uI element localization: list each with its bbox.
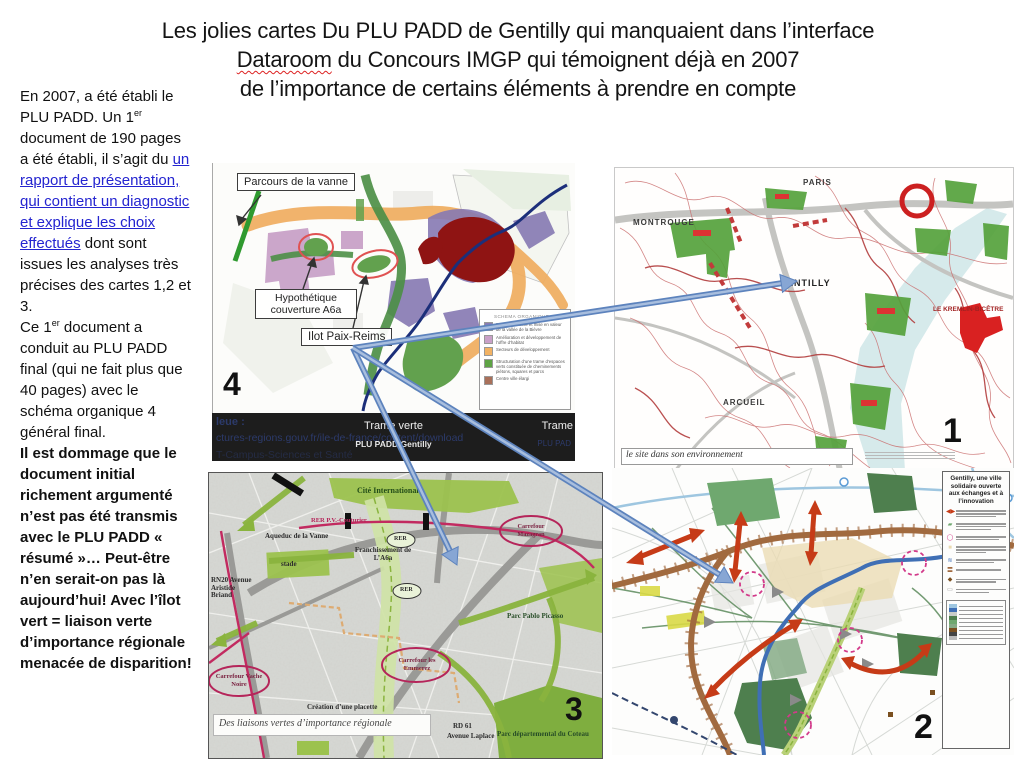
map1-site-environnement: PARIS MONTROUGE GENTILLY ARCUEIL LE KREM… <box>614 167 1014 472</box>
legend-item: 〓 <box>946 568 1006 574</box>
label-couverture-a6a: Hypothétique couverture A6a <box>255 289 357 319</box>
label-parcours-vanne: Parcours de la vanne <box>237 173 355 191</box>
page-title: Les jolies cartes Du PLU PADD de Gentill… <box>118 16 918 103</box>
banner-center-sub: PLU PADD Gentilly <box>212 439 575 449</box>
mauve-swatch <box>484 335 493 344</box>
label-stade: stade <box>281 561 297 569</box>
banner-right-sub: PLU PAD <box>537 439 571 448</box>
banner-right-title: Trame <box>542 420 573 432</box>
banner-left-url2: T-Campus-Sciences et Santé <box>216 449 353 461</box>
map2-number: 2 <box>914 708 933 747</box>
legend-item: Structuration d’une trame d’espaces vert… <box>484 359 567 374</box>
label-cite-internationale: Cité Internationale <box>357 487 422 495</box>
legend-item: ◆ <box>946 577 1006 584</box>
legend-item: ◯ <box>946 535 1006 542</box>
label-carrefour-mazagran: Carrefour Mazagran <box>507 523 555 538</box>
legend-item: ▭ <box>946 587 1006 594</box>
purple-swatch <box>484 322 493 331</box>
label-rer-pv: RER P.V.-Couturier <box>311 517 367 525</box>
map2-legend: Gentilly, une ville solidaire ouverte au… <box>942 471 1010 749</box>
label-parc-picasso: Parc Pablo Picasso <box>507 613 563 621</box>
legend-line <box>959 630 1003 631</box>
label-rer-1: RER <box>394 536 407 544</box>
note-icon: ▭ <box>946 587 954 593</box>
legend-line <box>959 638 1003 639</box>
label-carrefour-vache-noire: Carrefour Vache Noire <box>215 673 263 688</box>
label-kremlin-bicetre: LE KREMLIN-BICÊTRE <box>933 306 1003 313</box>
legend-item: ≋ <box>946 558 1006 565</box>
label-rer-2: RER <box>400 587 413 595</box>
legend-item: Secteurs de développement <box>484 347 567 356</box>
map2-legend-title: Gentilly, une ville solidaire ouverte au… <box>946 475 1006 505</box>
label-franchissement: Franchissement de L’A6a <box>347 547 419 562</box>
legend-line <box>959 622 1003 623</box>
legend-item: Centre ville élargi <box>484 376 567 385</box>
legend-line <box>959 606 1003 607</box>
bar-icon: 〓 <box>946 568 954 574</box>
green-swatch <box>484 359 493 368</box>
sidebar-paragraph-1: En 2007, a été établi le PLU PADD. Un 1e… <box>20 86 192 317</box>
title-dataroom: Dataroom <box>237 47 332 72</box>
legend-line <box>959 634 1003 635</box>
sidebar-commentary: En 2007, a été établi le PLU PADD. Un 1e… <box>20 86 192 674</box>
label-gentilly: GENTILLY <box>779 278 831 288</box>
label-montrouge: MONTROUGE <box>633 218 695 227</box>
sidebar-paragraph-2: Ce 1er document a conduit au PLU PADD fi… <box>20 317 192 443</box>
brown-swatch <box>484 376 493 385</box>
circle-icon: ◯ <box>946 535 954 541</box>
legend-line <box>959 614 1003 615</box>
map1-caption: le site dans son environnement <box>621 448 853 465</box>
label-placette: Création d’une placette <box>307 704 377 712</box>
orange-swatch <box>484 347 493 356</box>
map3-caption: Des liaisons vertes d’importance régiona… <box>213 714 431 736</box>
map2-sublegend <box>946 600 1006 644</box>
legend-item: Amélioration et développement de l’offre… <box>484 335 567 345</box>
map1-number: 1 <box>943 412 962 451</box>
label-rn20: RN20 Avenue Aristide Briand <box>211 577 253 600</box>
green-leaf-icon: ▰ <box>946 522 954 528</box>
red-arrow-icon: ◀▶ <box>946 509 954 515</box>
map4-schema-organique: Parcours de la vanne Hypothétique couver… <box>212 163 575 413</box>
legend-item: ▰ <box>946 522 1006 532</box>
label-carrefour-emmerez: Carrefour les Emmerez <box>391 657 443 672</box>
map1-credits <box>865 450 955 461</box>
title-line2: Dataroom du Concours IMGP qui témoignent… <box>118 45 918 74</box>
label-paris: PARIS <box>803 178 832 187</box>
video-caption-banner: leue : ctures-regions.gouv.fr/ile-de-fra… <box>212 413 575 461</box>
sidebar-paragraph-3: Il est dommage que le document initial r… <box>20 443 192 674</box>
monument-icon: ◆ <box>946 577 954 583</box>
map4-legend-title: SCHEMA ORGANIQUE <box>494 314 567 319</box>
label-aqueduc: Aqueduc de la Vanne <box>265 533 328 541</box>
map4-legend: SCHEMA ORGANIQUE Reconnaissance et mise … <box>479 309 571 410</box>
legend-item: Reconnaissance et mise en valeur de la v… <box>484 322 567 332</box>
map3-number: 3 <box>565 691 583 728</box>
legend-line <box>959 618 1003 619</box>
label-arcueil: ARCUEIL <box>723 398 766 407</box>
legend-line <box>959 626 1003 627</box>
map3-liaisons-vertes: Cité Internationale RER P.V.-Couturier A… <box>208 472 603 759</box>
label-parc-coteau: Parc départemental du Coteau <box>497 731 597 739</box>
tan-square-icon: ■ <box>946 545 954 551</box>
label-avenue-laplace: Avenue Laplace <box>447 733 495 741</box>
legend-line <box>959 610 1003 611</box>
legend-item: ■ <box>946 545 1006 555</box>
banner-center-title: Trame verte <box>212 420 575 432</box>
blue-line-icon: ≋ <box>946 558 954 564</box>
label-ilot-paix-reims: Ilot Paix-Reims <box>301 328 392 346</box>
map2-ville-solidaire: Gentilly, une ville solidaire ouverte au… <box>612 468 1014 755</box>
title-line1: Les jolies cartes Du PLU PADD de Gentill… <box>118 16 918 45</box>
map4-number: 4 <box>223 366 241 403</box>
legend-item: ◀▶ <box>946 509 1006 519</box>
title-line3: de l’importance de certains éléments à p… <box>118 74 918 103</box>
label-rd61: RD 61 <box>453 723 472 731</box>
slide: Les jolies cartes Du PLU PADD de Gentill… <box>0 0 1024 760</box>
